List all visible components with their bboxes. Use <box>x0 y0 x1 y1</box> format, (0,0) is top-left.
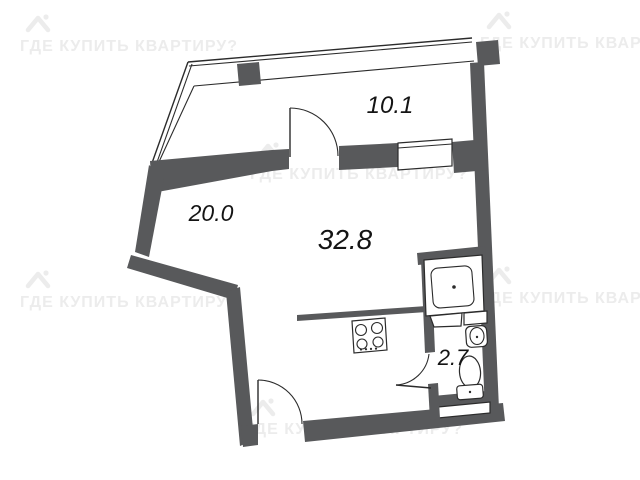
glazing-left-inner-line <box>156 64 192 165</box>
door-swing-arc <box>396 354 429 385</box>
shower-tray-icon <box>424 255 484 316</box>
sink-icon <box>465 325 487 347</box>
stove-body <box>352 318 387 353</box>
window-opening <box>398 139 452 170</box>
wall-above-room-left <box>150 150 272 193</box>
glazing-inner-line <box>189 42 472 66</box>
window-symbol <box>398 139 452 170</box>
wall-kitchen <box>297 306 427 321</box>
bathroom-counter-left <box>430 313 462 327</box>
room-label-left-room: 20.0 <box>188 200 234 226</box>
wall-pillar-top <box>237 62 261 86</box>
wall-door-jamb <box>272 149 289 171</box>
door-to-hallway <box>290 108 338 157</box>
sink-drain <box>476 336 478 338</box>
stove-knob <box>360 348 362 350</box>
shower-drain <box>452 285 456 289</box>
stove-knob <box>375 348 377 350</box>
wall-left-upper <box>135 165 164 257</box>
wall-block-right <box>452 139 488 173</box>
glazing-outer-line <box>188 38 472 62</box>
glazing-left-outer-line <box>152 62 188 163</box>
room-label-main-room: 32.8 <box>318 224 373 255</box>
stove-knob <box>365 348 367 350</box>
stove-knob <box>370 348 372 350</box>
toilet-button <box>469 391 471 393</box>
door-bathroom <box>396 354 431 388</box>
door-leaf <box>396 385 431 388</box>
floorplan-image: ГДЕ КУПИТЬ КВАРТИРУ? ГДЕ КУПИТЬ КВАРТИРУ… <box>0 0 640 480</box>
wall-left-lower <box>226 287 254 446</box>
glazing-sill-line <box>194 61 474 86</box>
door-bottom <box>258 380 302 424</box>
bathroom-counter-right <box>464 311 487 325</box>
floorplan-drawing: 10.1 20.0 32.8 2.7 <box>0 0 640 480</box>
room-label-bathroom: 2.7 <box>437 345 469 370</box>
room-label-hallway: 10.1 <box>367 92 414 119</box>
wall-bottom-stub <box>241 424 258 447</box>
door-swing-arc <box>258 380 302 424</box>
wall-between-rooms <box>339 143 398 170</box>
wall-corner-top-right <box>476 40 500 66</box>
door-swing-arc <box>290 108 338 156</box>
stove-icon <box>352 318 387 353</box>
wall-left-diagonal <box>127 255 238 300</box>
